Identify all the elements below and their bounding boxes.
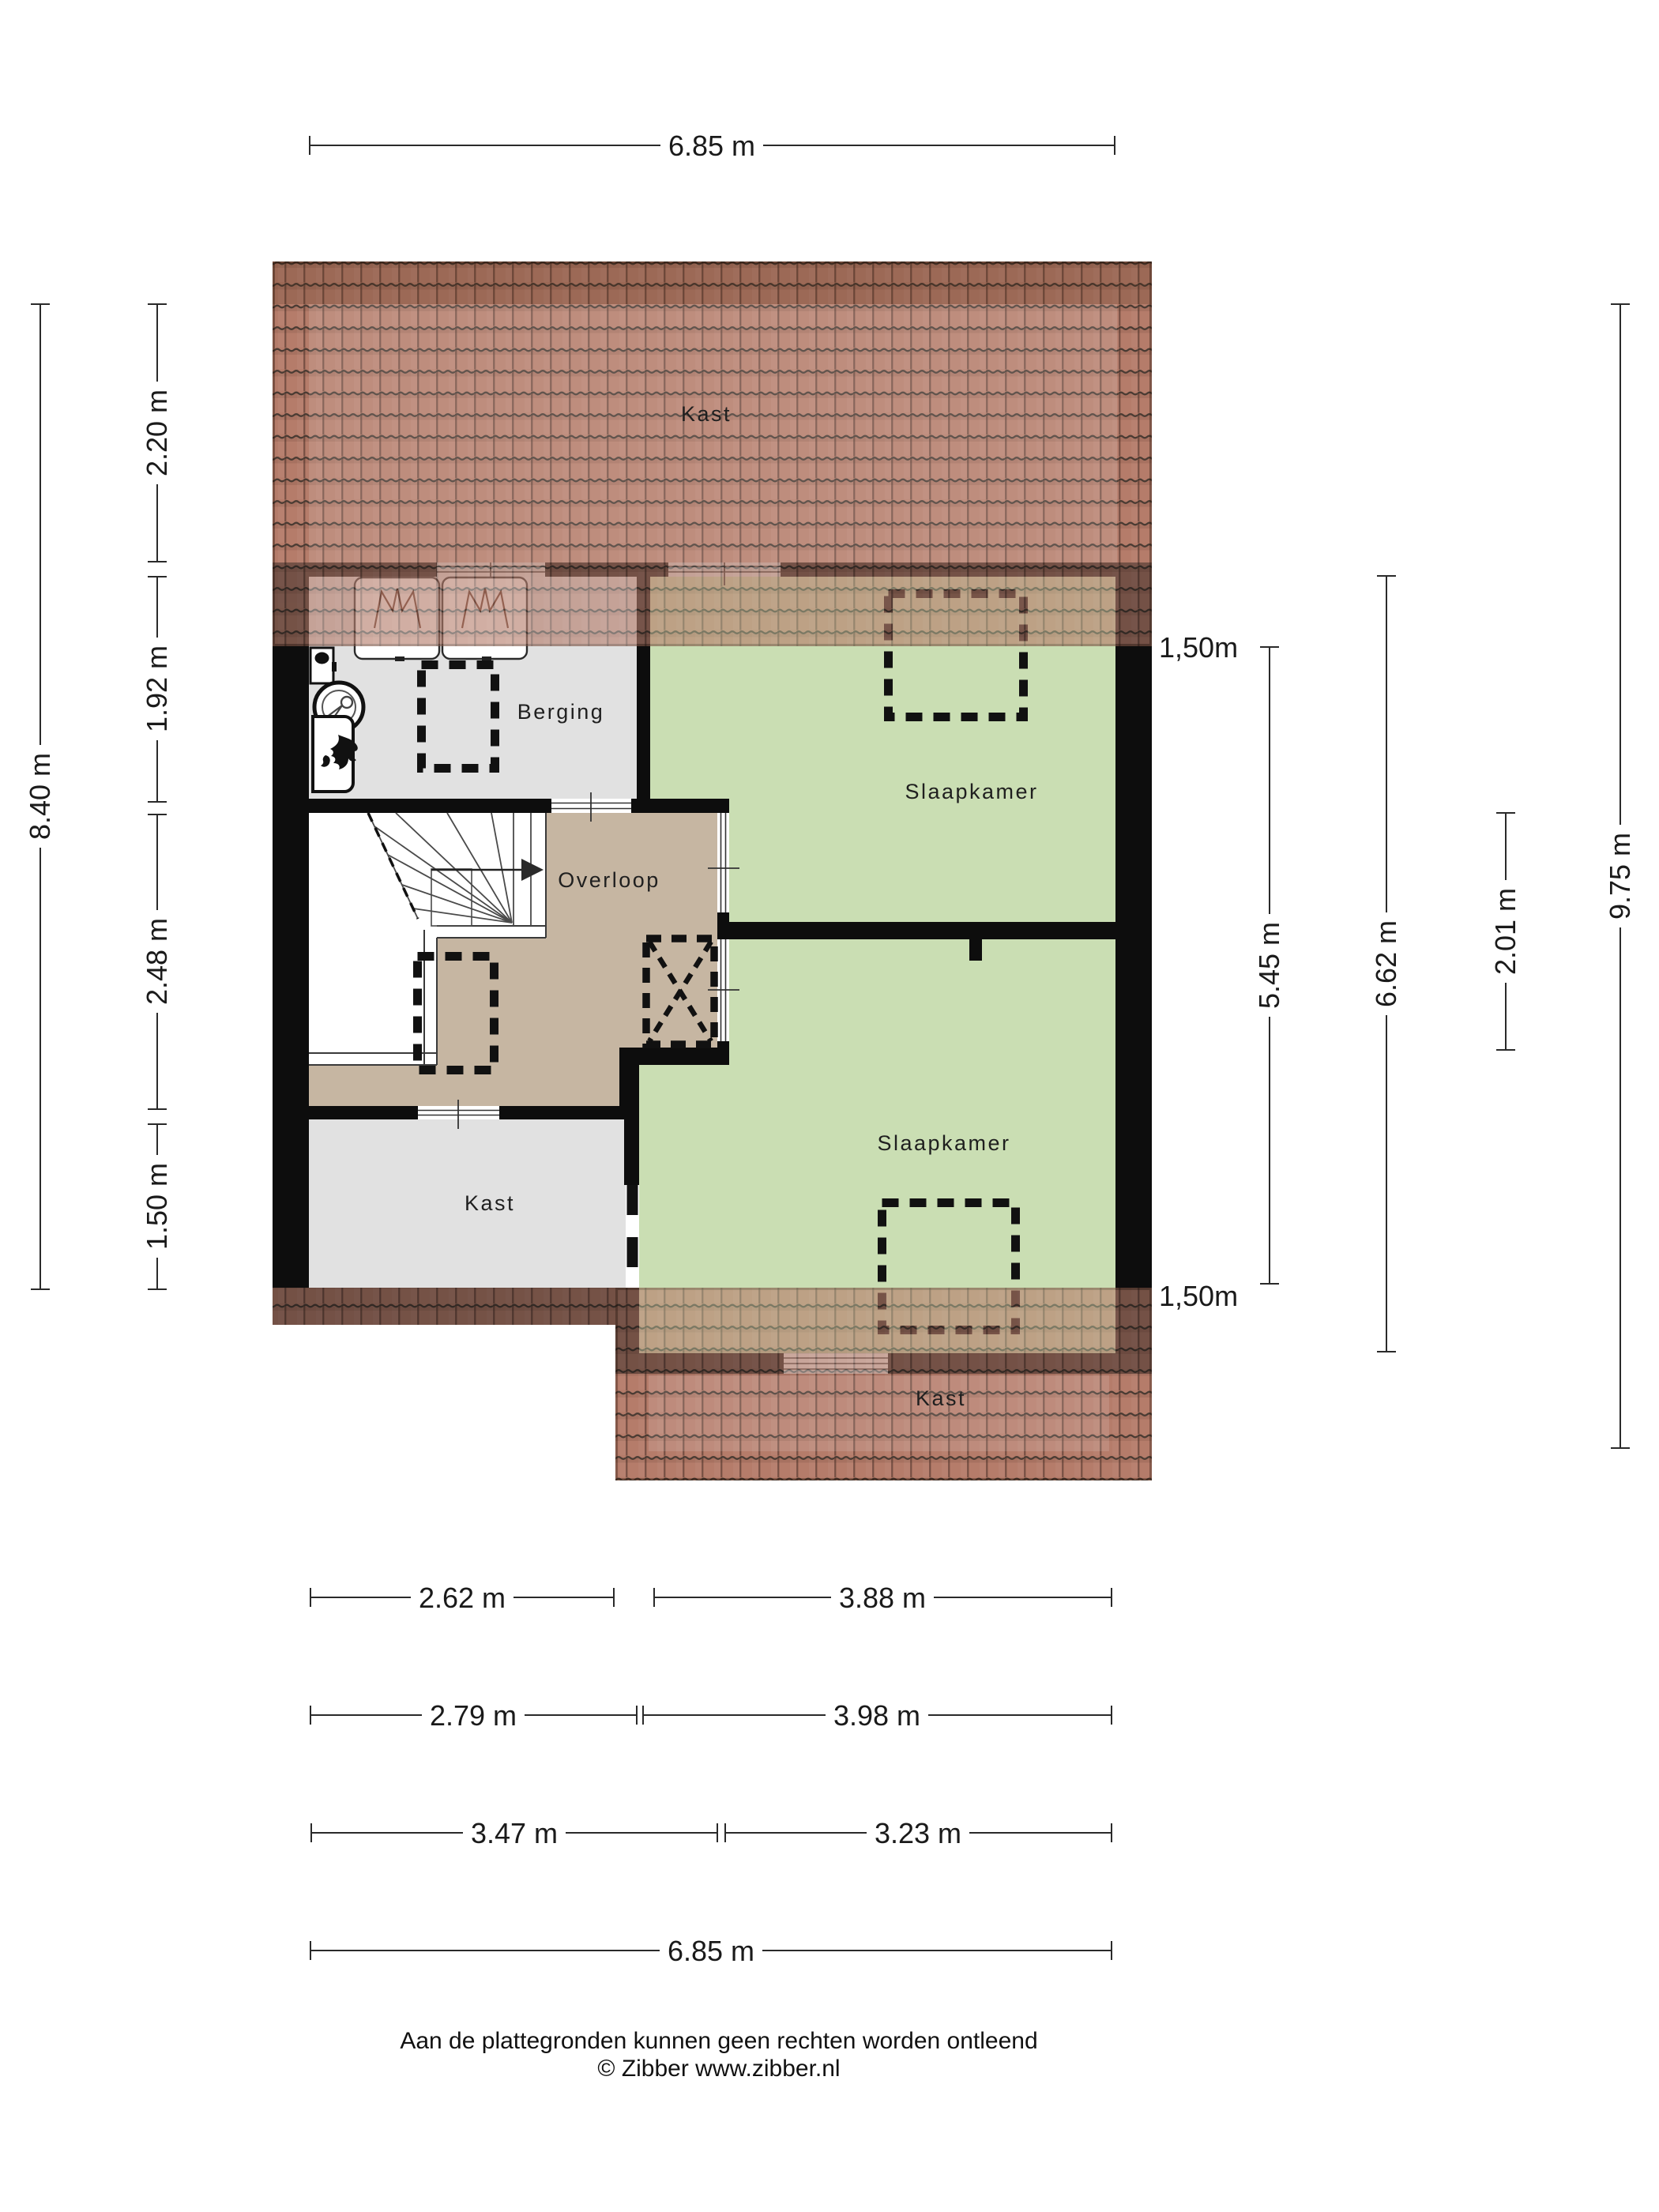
svg-text:1,50m: 1,50m [1159,631,1238,664]
svg-text:6.62 m: 6.62 m [1370,920,1402,1007]
svg-text:2.79 m: 2.79 m [430,1699,517,1732]
svg-text:1,50m: 1,50m [1159,1280,1238,1312]
svg-text:8.40 m: 8.40 m [24,753,56,840]
svg-text:3.98 m: 3.98 m [833,1699,920,1732]
svg-text:Berging: Berging [517,700,605,724]
svg-text:6.85 m: 6.85 m [668,1935,754,1967]
svg-text:9.75 m: 9.75 m [1604,833,1636,920]
svg-text:Overloop: Overloop [558,868,660,892]
svg-text:2.20 m: 2.20 m [141,389,173,476]
svg-text:Slaapkamer: Slaapkamer [905,780,1038,803]
svg-text:3.88 m: 3.88 m [839,1582,926,1614]
svg-text:© Zibber www.zibber.nl: © Zibber www.zibber.nl [597,2056,840,2082]
svg-text:3.23 m: 3.23 m [875,1817,961,1849]
svg-text:Kast: Kast [681,402,732,426]
svg-text:6.85 m: 6.85 m [668,130,755,162]
svg-text:Aan de plattegronden kunnen ge: Aan de plattegronden kunnen geen rechten… [400,2028,1037,2054]
svg-text:5.45 m: 5.45 m [1253,922,1285,1009]
svg-text:2.62 m: 2.62 m [419,1582,506,1614]
svg-text:3.47 m: 3.47 m [471,1817,558,1849]
svg-text:Slaapkamer: Slaapkamer [877,1131,1010,1155]
svg-text:2.48 m: 2.48 m [141,918,173,1005]
svg-text:1.50 m: 1.50 m [141,1163,173,1250]
svg-text:Kast: Kast [916,1386,966,1410]
svg-text:Kast: Kast [465,1191,515,1215]
svg-text:2.01 m: 2.01 m [1489,888,1522,975]
svg-text:1.92 m: 1.92 m [141,645,173,732]
